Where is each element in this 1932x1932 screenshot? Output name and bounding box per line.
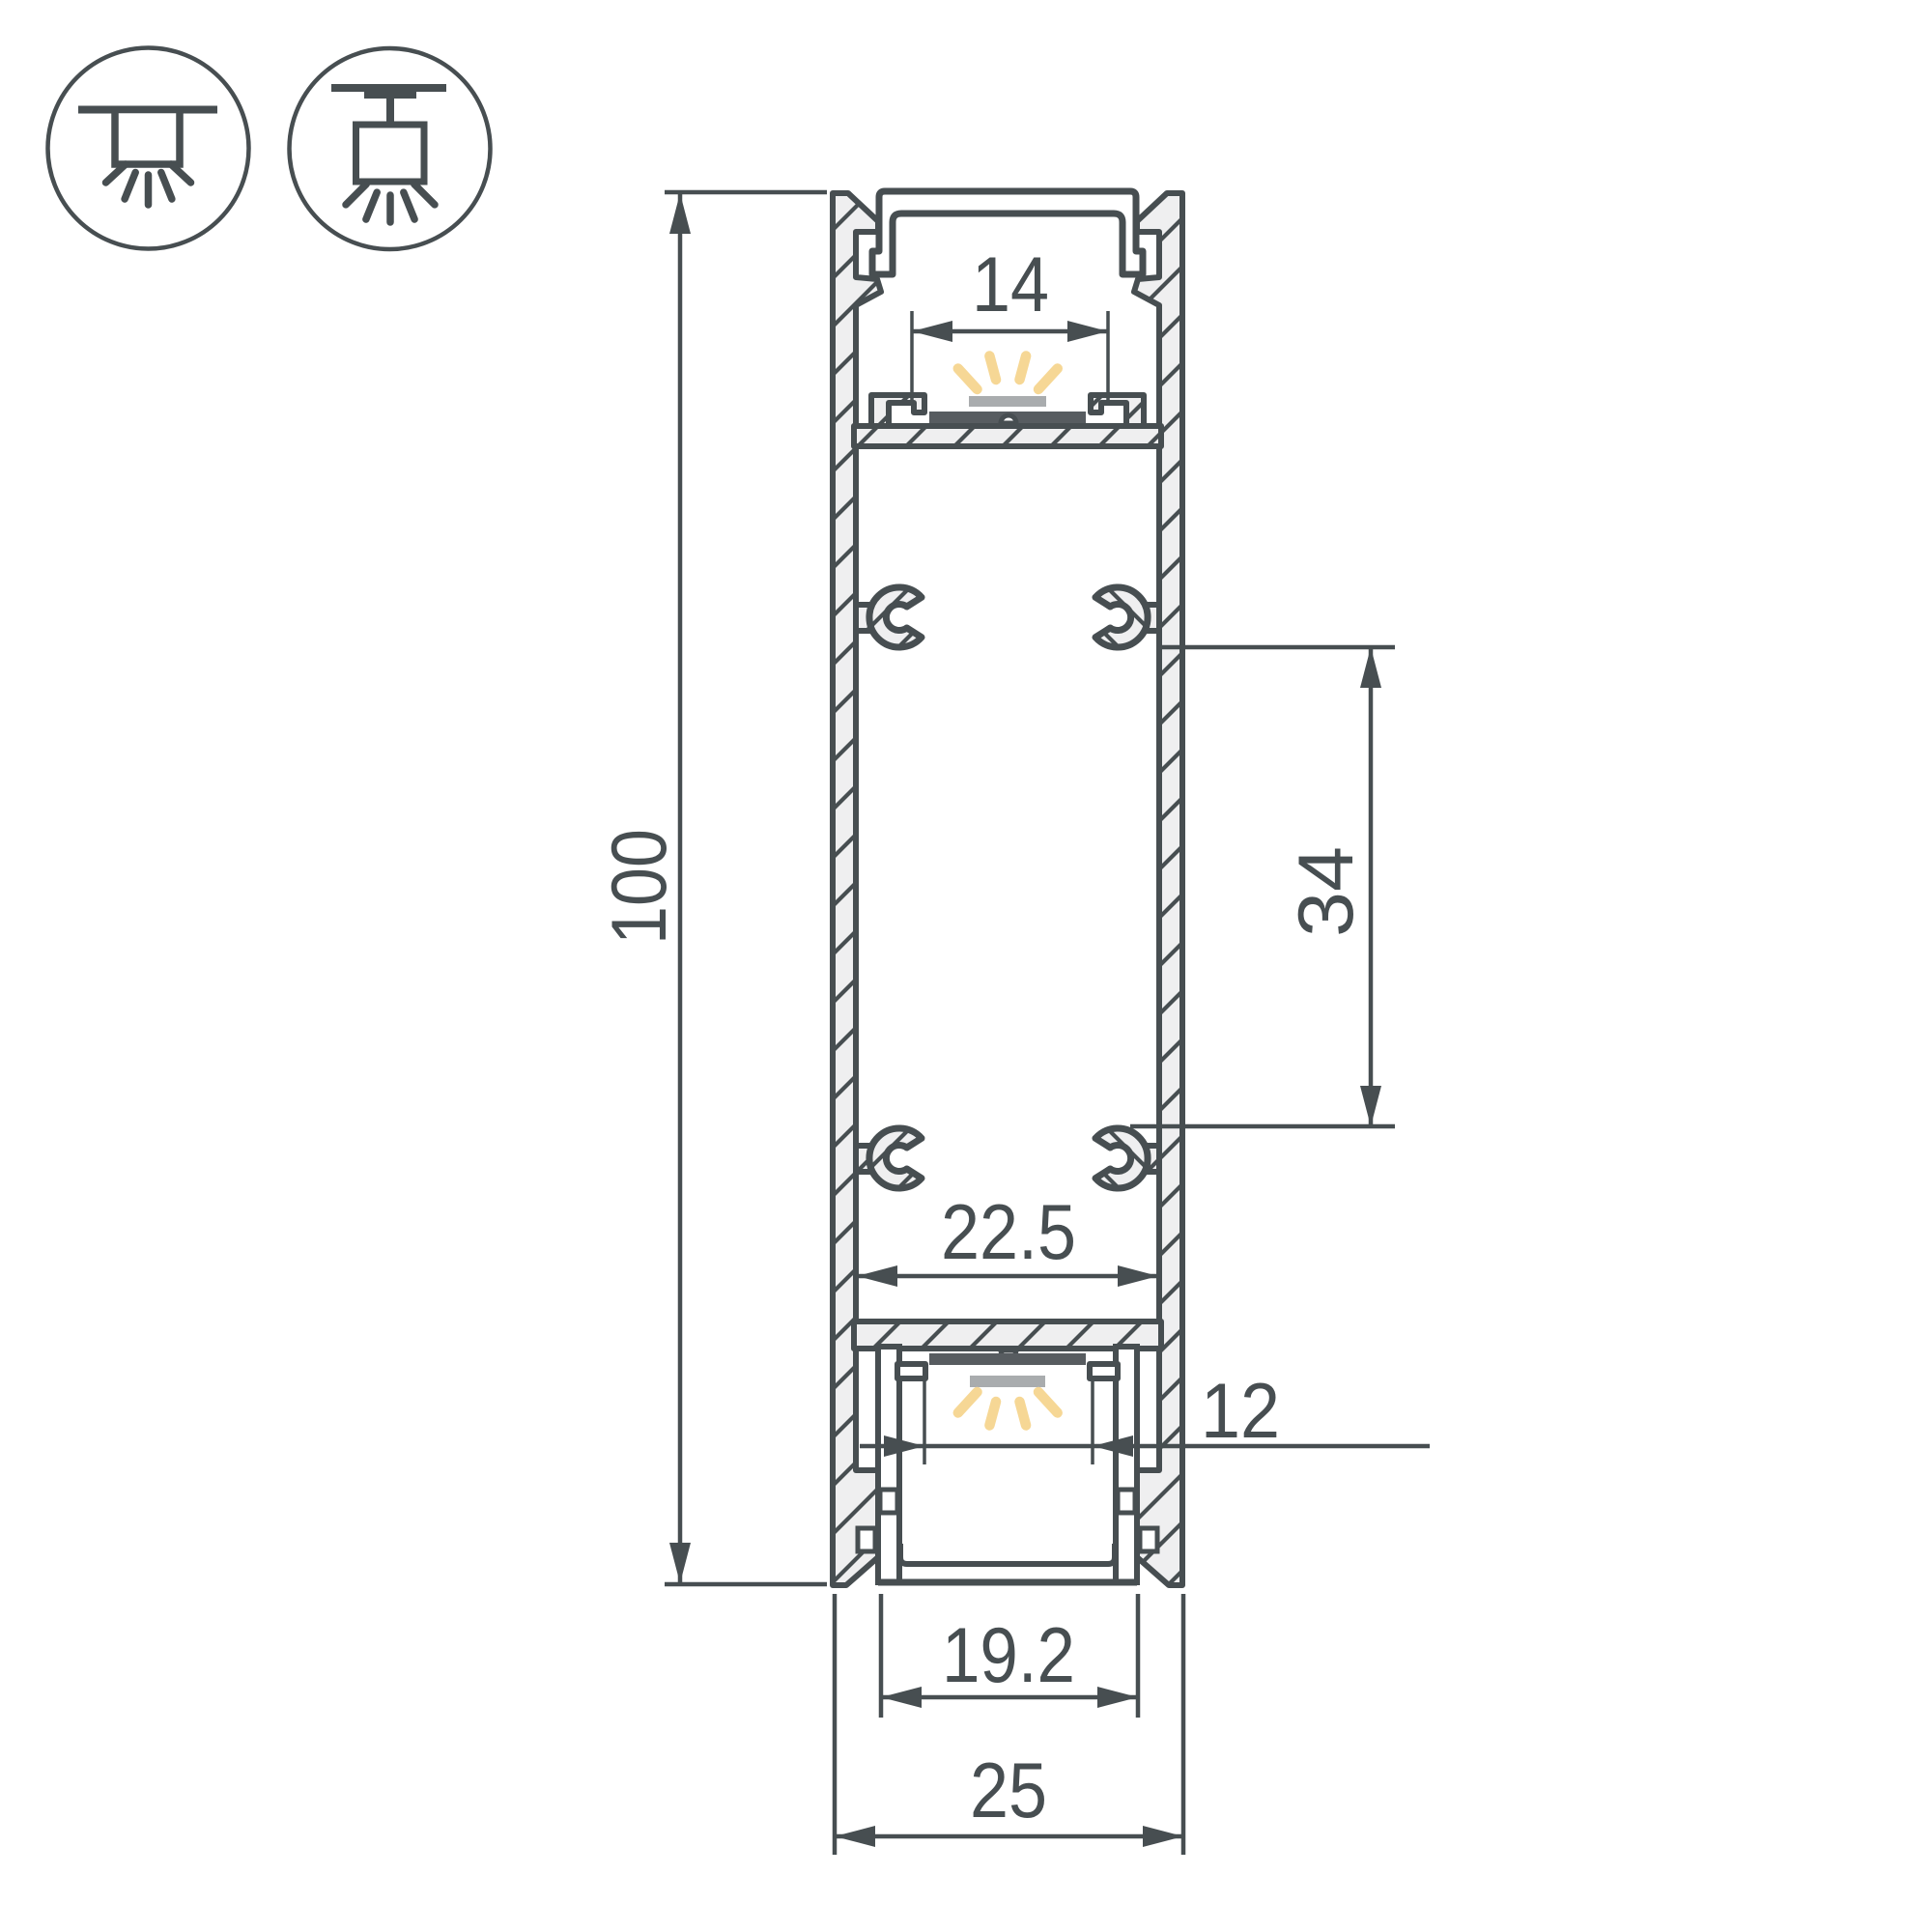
svg-text:12: 12 bbox=[1201, 1368, 1280, 1455]
svg-text:19.2: 19.2 bbox=[942, 1612, 1075, 1699]
svg-text:100: 100 bbox=[596, 829, 683, 945]
svg-text:34: 34 bbox=[1283, 846, 1370, 937]
svg-text:14: 14 bbox=[972, 241, 1049, 328]
svg-text:25: 25 bbox=[970, 1747, 1047, 1834]
svg-text:22.5: 22.5 bbox=[941, 1189, 1076, 1276]
